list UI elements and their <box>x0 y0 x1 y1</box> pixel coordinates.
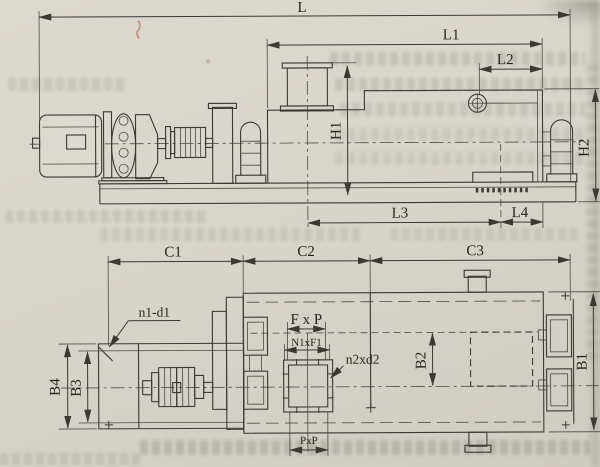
dim-label-B1: B1 <box>575 353 591 371</box>
dim-label-L1: L1 <box>443 27 460 43</box>
dim-label-C3: C3 <box>466 243 484 259</box>
reducer-base-pad <box>99 181 167 184</box>
flange-bolt-marks <box>283 359 334 413</box>
discharge-outlet-plan <box>470 332 532 386</box>
dimension-H1: H1 <box>328 63 357 195</box>
dimension-L2: L2 <box>479 52 542 95</box>
cover-plug <box>468 94 486 112</box>
dimension-L3-L4: L3 L4 <box>308 202 543 229</box>
electric-motor <box>32 115 101 177</box>
engineering-drawing: L L1 L2 H1 <box>0 0 600 467</box>
dimension-B3-B4: B4 B3 <box>47 344 100 429</box>
plan-centerline <box>61 386 599 388</box>
plan-view: C1 C2 C3 B1 B2 <box>47 243 600 457</box>
base-rail <box>100 182 576 204</box>
label-n2xd2: n2xd2 <box>346 352 380 367</box>
pen-marks <box>137 20 211 64</box>
dim-label-N1xF1: N1xF1 <box>291 337 322 349</box>
dim-label-L2: L2 <box>497 52 514 68</box>
dim-label-L: L <box>297 0 306 16</box>
dim-label-L4: L4 <box>512 205 529 221</box>
drive-coupling <box>158 126 213 158</box>
motor-fan-stub <box>33 138 40 148</box>
drive-base-plan <box>98 343 243 429</box>
dim-label-C2: C2 <box>297 244 315 260</box>
dimension-C1-C2-C3: C1 C2 C3 <box>108 243 570 346</box>
bearing-pedestal <box>241 122 261 175</box>
scanned-drawing-page: L L1 L2 H1 <box>0 0 600 467</box>
trough-end-plate-plan <box>226 297 244 429</box>
tail-end-bearing <box>543 120 577 182</box>
trough-section-joint <box>370 293 371 408</box>
dim-label-PxP: PxP <box>300 435 318 447</box>
dimension-PxP: PxP <box>290 412 328 456</box>
callout-n1-d1: n1-d1 <box>109 305 180 347</box>
drive-end-bearing-blocks <box>243 317 267 409</box>
callout-n2xd2: n2xd2 <box>331 352 380 378</box>
conveyor-trough <box>267 90 542 183</box>
dim-label-H1: H1 <box>329 122 345 140</box>
dimension-L: L <box>39 0 571 184</box>
dim-label-FxP: F x P <box>290 312 322 328</box>
pen-mark <box>206 59 210 63</box>
dim-label-B2: B2 <box>414 352 430 370</box>
side-elevation-view: L L1 L2 H1 <box>29 0 600 230</box>
dim-label-L3: L3 <box>392 206 409 222</box>
drive-bearing-plate <box>212 311 226 409</box>
dim-label-B3: B3 <box>69 379 85 397</box>
dimension-N1xF1: N1xF1 <box>284 337 329 360</box>
cover-bolt-stub-top <box>464 270 490 292</box>
dim-label-C1: C1 <box>164 245 182 261</box>
dim-label-H2: H2 <box>577 139 593 157</box>
pen-mark <box>137 21 140 39</box>
pedestal-foot <box>236 175 266 183</box>
shaft-centerline <box>30 142 582 144</box>
gear-reducer <box>98 112 166 184</box>
label-n1-d1: n1-d1 <box>139 305 171 320</box>
dimension-B2: B2 <box>413 333 432 385</box>
cover-bolt-stub-bottom <box>465 432 491 452</box>
base-corner-chamfer <box>98 347 112 361</box>
dim-label-B4: B4 <box>48 378 64 396</box>
